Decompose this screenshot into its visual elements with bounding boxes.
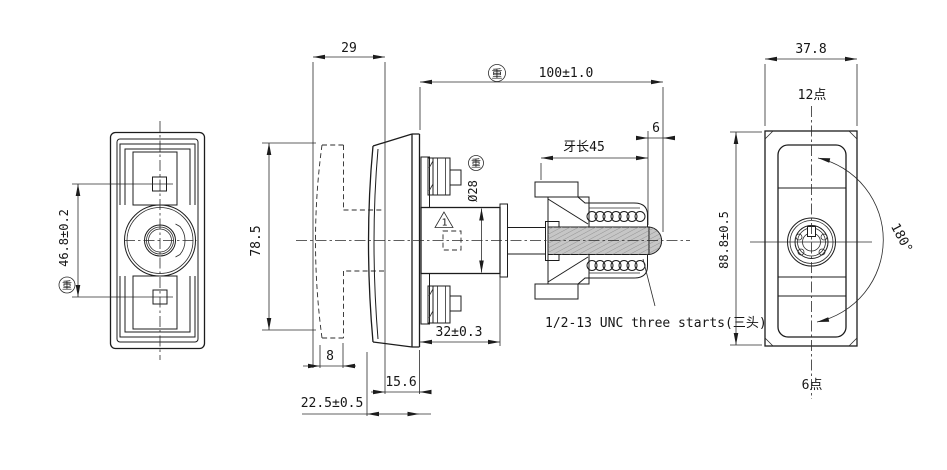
dim-overall-length-text: 100±1.0	[539, 66, 594, 81]
dim-hole-spacing: 46.8±0.2 重	[57, 184, 80, 297]
dim-rear-height-text: 88.8±0.5	[717, 211, 731, 269]
dim-hole-spacing-text: 46.8±0.2	[57, 209, 71, 267]
dim-neck-text: 15.6	[385, 375, 416, 390]
dim-thread-length: 牙长45	[541, 140, 648, 180]
technical-drawing: 46.8±0.2 重 78.5	[0, 0, 947, 470]
dim-front-height: 78.5	[249, 143, 316, 330]
dim-tip-length-text: 6	[652, 121, 660, 136]
dim-boss-diameter: Ø28 重	[466, 156, 484, 273]
rear-view: 180°	[750, 106, 915, 399]
dim-step: 8	[303, 343, 356, 368]
front-view	[72, 121, 205, 360]
thread-spec-text: 1/2-13 UNC three starts(三头)	[545, 316, 767, 331]
dim-knob-width: 29	[313, 41, 385, 59]
important-dim-icon-text: 重	[62, 279, 72, 292]
clock-6-label: 6点	[802, 378, 823, 393]
dim-step-text: 8	[326, 349, 334, 364]
dim-rear-height: 88.8±0.5	[717, 132, 762, 345]
dim-neck: 15.6	[371, 350, 432, 394]
important-dim-icon-text: 重	[492, 67, 503, 81]
dim-thread-length-text: 牙长45	[563, 140, 605, 155]
knob-profile	[369, 146, 374, 342]
side-view: 1	[296, 62, 690, 394]
bottom-bolt	[428, 286, 461, 323]
dim-boss-diameter-text: Ø28	[466, 180, 480, 202]
dim-grip-range-text: 22.5±0.5	[301, 396, 364, 411]
flag-note-1-text: 1	[441, 218, 447, 229]
drawing-canvas: 46.8±0.2 重 78.5	[0, 0, 947, 470]
dim-tip-length: 6	[636, 121, 675, 225]
dim-rotation-text: 180°	[887, 221, 915, 256]
flag-note-1: 1	[435, 212, 453, 229]
dim-rear-width-text: 37.8	[795, 42, 826, 57]
important-dim-icon-text: 重	[471, 157, 481, 170]
rotation-arc: 180°	[817, 156, 916, 324]
top-bolt	[428, 158, 461, 195]
dim-front-height-text: 78.5	[249, 225, 264, 256]
clock-12-label: 12点	[798, 88, 827, 103]
dim-knob-width-text: 29	[341, 41, 357, 56]
dim-rear-width: 37.8	[765, 42, 857, 126]
dim-boss-length-text: 32±0.3	[436, 325, 483, 340]
